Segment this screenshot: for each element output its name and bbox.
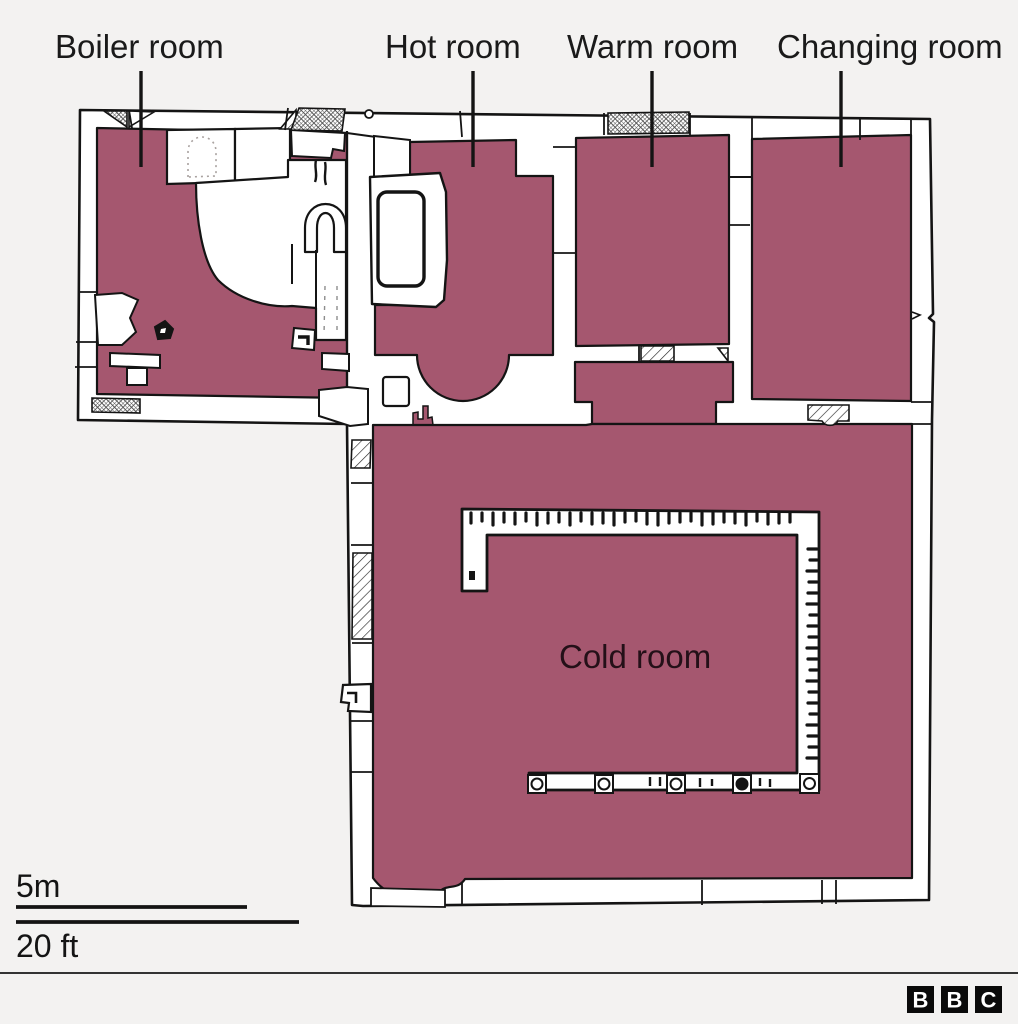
svg-text:Hot room: Hot room [385,28,521,65]
svg-text:Cold room: Cold room [559,638,711,675]
svg-text:Warm room: Warm room [567,28,738,65]
svg-text:C: C [981,988,997,1013]
svg-text:Changing room: Changing room [777,28,1003,65]
svg-text:Boiler room: Boiler room [55,28,224,65]
svg-text:B: B [947,988,963,1013]
svg-text:B: B [913,988,929,1013]
svg-text:5m: 5m [16,868,60,904]
svg-text:20 ft: 20 ft [16,928,78,964]
